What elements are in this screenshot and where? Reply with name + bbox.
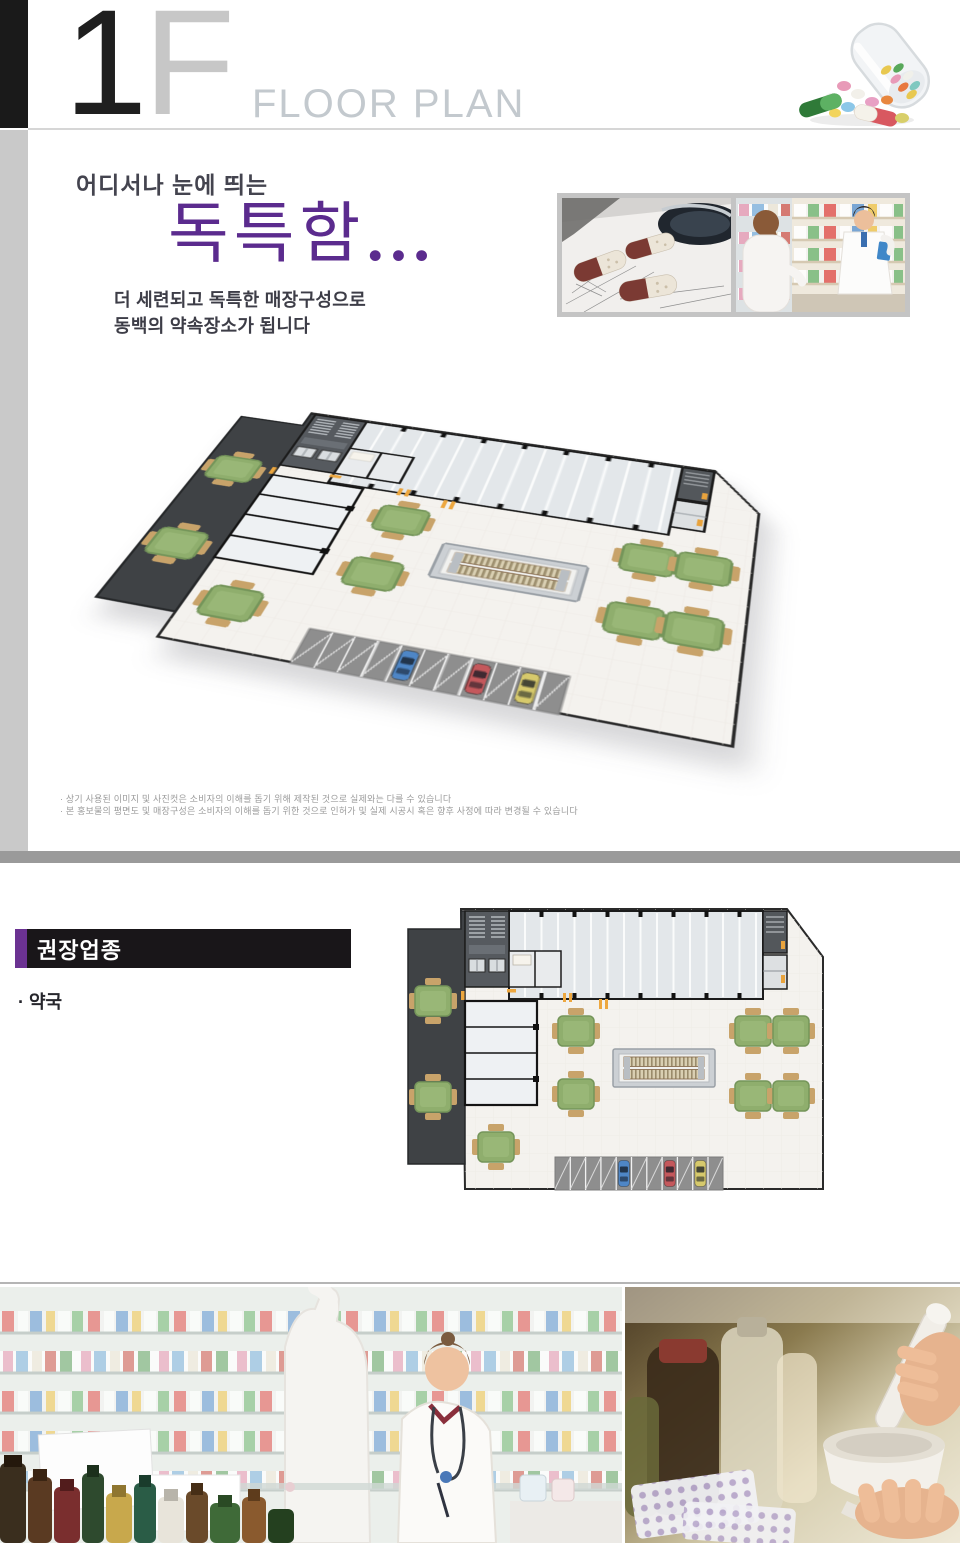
hero-headline-ellipsis: ... <box>365 206 435 274</box>
floor-plan-subtitle: FLOOR PLAN <box>252 82 525 127</box>
floor-number-letter: F <box>143 0 231 146</box>
floor-plan-2d <box>403 901 858 1211</box>
corner-black-block <box>0 0 28 128</box>
purple-accent-bar <box>15 929 27 968</box>
hero-description: 더 세련되고 독특한 매장구성으로 동백의 약속장소가 됩니다 <box>114 287 366 339</box>
hero-description-line2: 동백의 약속장소가 됩니다 <box>114 313 366 339</box>
hero-headline-word: 독특함 <box>168 195 365 272</box>
recommended-business-header: 권장업종 <box>15 929 351 968</box>
photo-mortar-pestle <box>625 1287 960 1543</box>
photo-pharmacy-interior <box>0 1287 622 1543</box>
section-divider-bar <box>0 851 960 863</box>
floor-plan-3d <box>51 399 811 788</box>
floor-number-digit: 1 <box>64 0 143 146</box>
footer-rule <box>0 1282 960 1284</box>
floor-plan-poster: 1F FLOOR PLAN <box>0 0 960 1543</box>
photo-pharmacy-counter <box>736 198 905 312</box>
pill-bottle-art <box>792 8 942 130</box>
left-gray-strip <box>0 130 28 851</box>
photo-capsules-on-chart <box>562 198 731 312</box>
disclaimer-line1: · 상기 사용된 이미지 및 사진컷은 소비자의 이해를 돕기 위해 제작된 것… <box>60 793 578 805</box>
recommended-business-title: 권장업종 <box>37 933 122 965</box>
photo-frame <box>557 193 910 317</box>
floor-number: 1F <box>64 0 231 132</box>
disclaimer-line2: · 본 홍보물의 평면도 및 매장구성은 소비자의 이해를 돕기 위한 것으로 … <box>60 805 578 817</box>
recommended-business-item: · 약국 <box>18 988 62 1014</box>
hero-description-line1: 더 세련되고 독특한 매장구성으로 <box>114 287 366 313</box>
disclaimer-notes: · 상기 사용된 이미지 및 사진컷은 소비자의 이해를 돕기 위해 제작된 것… <box>60 793 578 817</box>
hero-headline: 독특함... <box>168 188 435 282</box>
